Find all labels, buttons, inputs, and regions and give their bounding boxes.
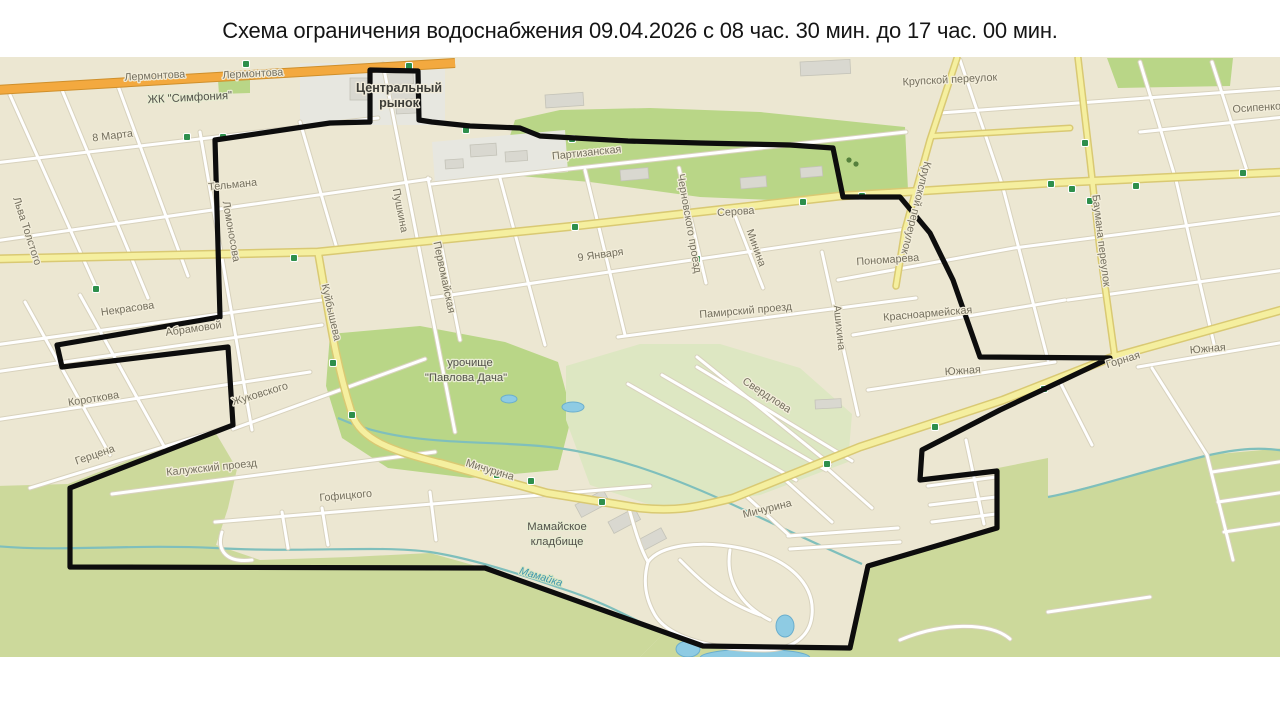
building <box>815 399 841 409</box>
pond <box>562 402 584 412</box>
building <box>505 150 528 162</box>
map-container: ЛермонтоваЛермонтоваЖК "Симфония"8 Марта… <box>0 57 1280 657</box>
building <box>470 143 497 157</box>
building <box>800 59 851 76</box>
bus-stop-icon <box>184 134 191 141</box>
city-map: ЛермонтоваЛермонтоваЖК "Симфония"8 Марта… <box>0 57 1280 657</box>
bus-stop-icon <box>330 360 337 367</box>
tree-icon <box>853 161 858 166</box>
street-label: Южная <box>944 364 981 378</box>
bus-stop-icon <box>800 199 807 206</box>
building <box>800 166 823 178</box>
bus-stop-icon <box>1240 170 1247 177</box>
page-title: Схема ограничения водоснабжения 09.04.20… <box>0 18 1280 44</box>
page: Схема ограничения водоснабжения 09.04.20… <box>0 0 1280 718</box>
poi-label: рынок <box>379 96 419 110</box>
bus-stop-icon <box>572 224 579 231</box>
bus-stop-icon <box>291 255 298 262</box>
bus-stop-icon <box>1048 181 1055 188</box>
poi-label: кладбище <box>531 536 584 548</box>
pond <box>501 395 517 403</box>
pond <box>776 615 794 637</box>
building <box>445 159 464 169</box>
poi-label: Мамайское <box>527 521 586 533</box>
building <box>740 176 767 189</box>
bus-stop-icon <box>1082 140 1089 147</box>
legend: район ограничения <box>0 657 1280 718</box>
bus-stop-icon <box>932 424 939 431</box>
poi-label: урочище <box>447 357 493 369</box>
building <box>620 168 649 181</box>
tree-icon <box>846 157 851 162</box>
bus-stop-icon <box>93 286 100 293</box>
poi-label: "Павлова Дача" <box>425 372 507 384</box>
bus-stop-icon <box>1069 186 1076 193</box>
bus-stop-icon <box>349 412 356 419</box>
bus-stop-icon <box>1133 183 1140 190</box>
building <box>545 92 584 108</box>
bus-stop-icon <box>824 461 831 468</box>
bus-stop-icon <box>599 499 606 506</box>
bus-stop-icon <box>243 61 250 68</box>
bus-stop-icon <box>528 478 535 485</box>
poi-label: Центральный <box>356 81 442 95</box>
